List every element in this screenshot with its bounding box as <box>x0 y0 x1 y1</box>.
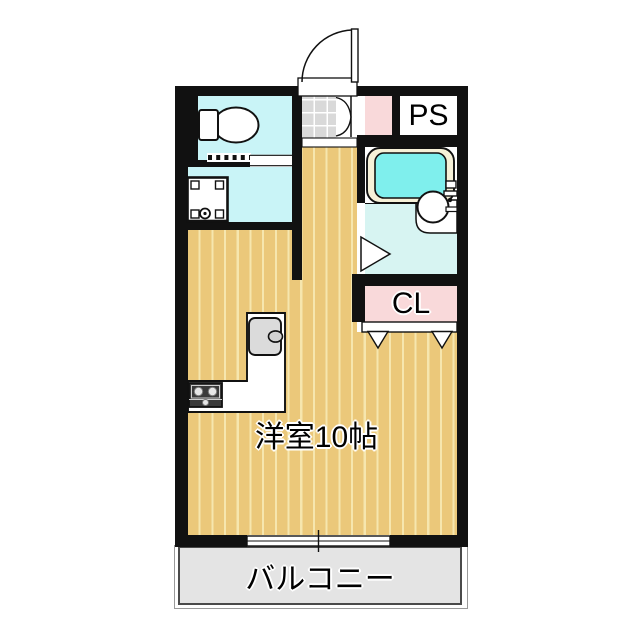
sliding-window-icon <box>247 530 390 552</box>
kitchen-sink-icon <box>249 318 283 355</box>
closet-folding-door-icon <box>362 322 457 348</box>
toilet-icon <box>199 108 259 143</box>
pipe-space-label: PS <box>400 99 457 132</box>
toilet-door-opening <box>207 153 292 167</box>
entrance-door <box>298 29 358 96</box>
gas-stove-icon <box>189 383 222 407</box>
bathroom-door-icon <box>361 237 390 271</box>
floorplan-page: { "rooms": { "main_room": { "label": "洋室… <box>0 0 640 640</box>
main-room-label: 洋室10帖 <box>194 417 439 451</box>
washing-machine-pan-icon <box>188 178 228 222</box>
entrance-step <box>302 138 357 147</box>
fixtures-layer <box>0 0 640 640</box>
closet-label: CL <box>365 286 457 322</box>
shoe-closet-double-door-icon <box>336 96 351 137</box>
